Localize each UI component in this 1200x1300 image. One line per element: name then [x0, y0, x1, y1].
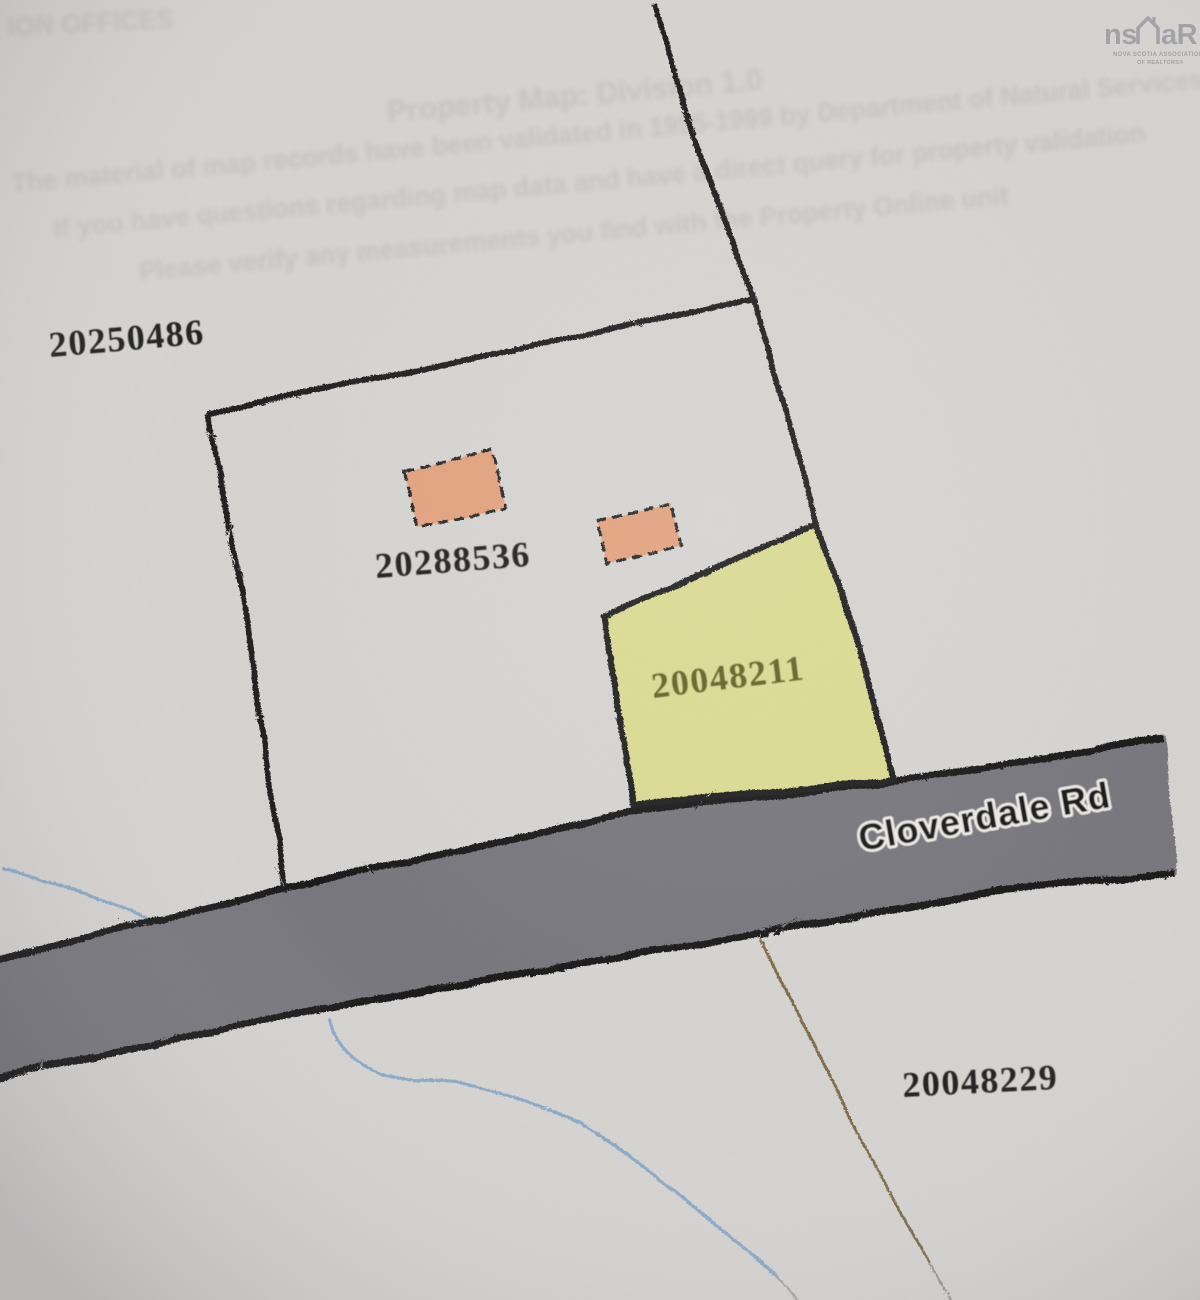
- photo-vignette-overlay: [0, 0, 1200, 1300]
- property-map-scan: ION OFFICES Property Map: Division 1.0 T…: [0, 0, 1200, 1300]
- map-canvas: ION OFFICES Property Map: Division 1.0 T…: [0, 0, 1200, 1300]
